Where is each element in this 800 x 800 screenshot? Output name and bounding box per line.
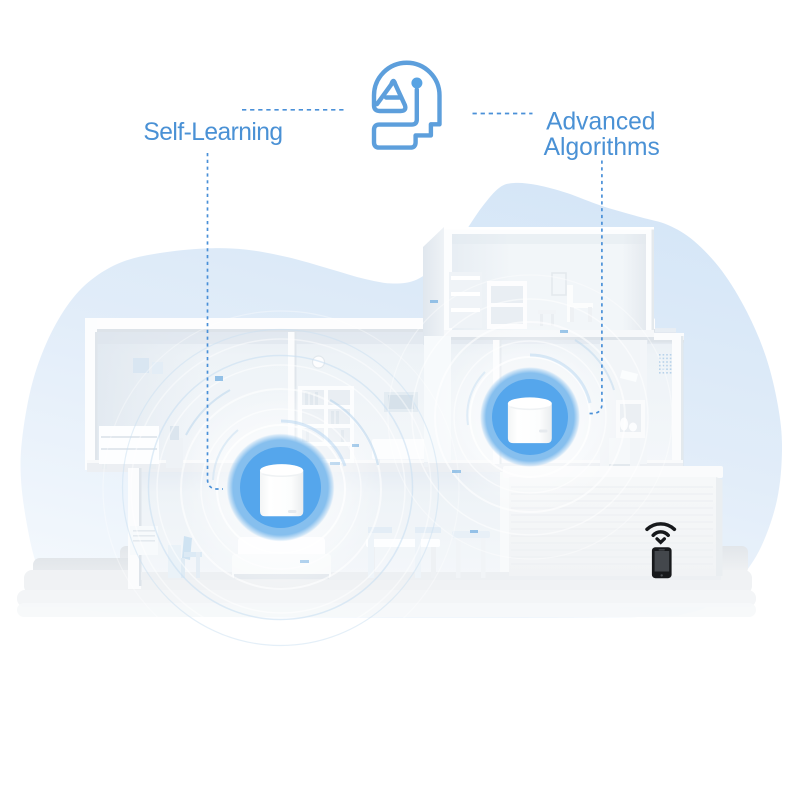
svg-text:Advanced: Advanced (546, 109, 655, 136)
svg-text:Self-Learning: Self-Learning (143, 119, 282, 146)
svg-text:Algorithms: Algorithms (544, 134, 660, 161)
